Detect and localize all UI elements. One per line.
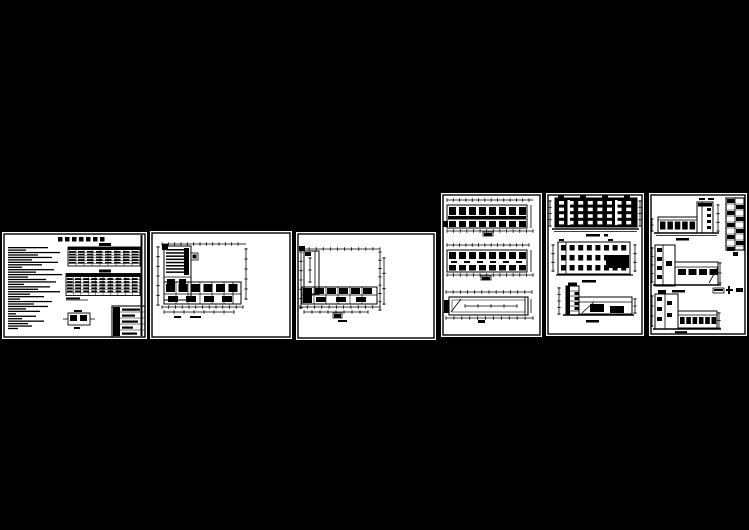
ground-floor-plan-drawing — [150, 231, 292, 339]
front-rear-elevations-and-section-drawing — [546, 193, 644, 336]
sheet-elevations-section — [546, 193, 644, 336]
sheet-general-notes-and-schedules — [2, 232, 147, 339]
side-elevations-and-details-drawing — [649, 193, 747, 336]
sheet-strip-plans-roof-plan — [441, 193, 542, 337]
strip-floor-plans-and-roof-plan-drawing — [441, 193, 542, 337]
sheet-ground-floor-plan — [150, 231, 292, 339]
general-notes-and-schedules-drawing — [2, 232, 147, 339]
sheet-side-elevations-details — [649, 193, 747, 336]
sheet-upper-floor-plan — [296, 232, 436, 340]
upper-floor-plan-drawing — [296, 232, 436, 340]
cad-drawing-set-thumbnail — [0, 0, 749, 530]
